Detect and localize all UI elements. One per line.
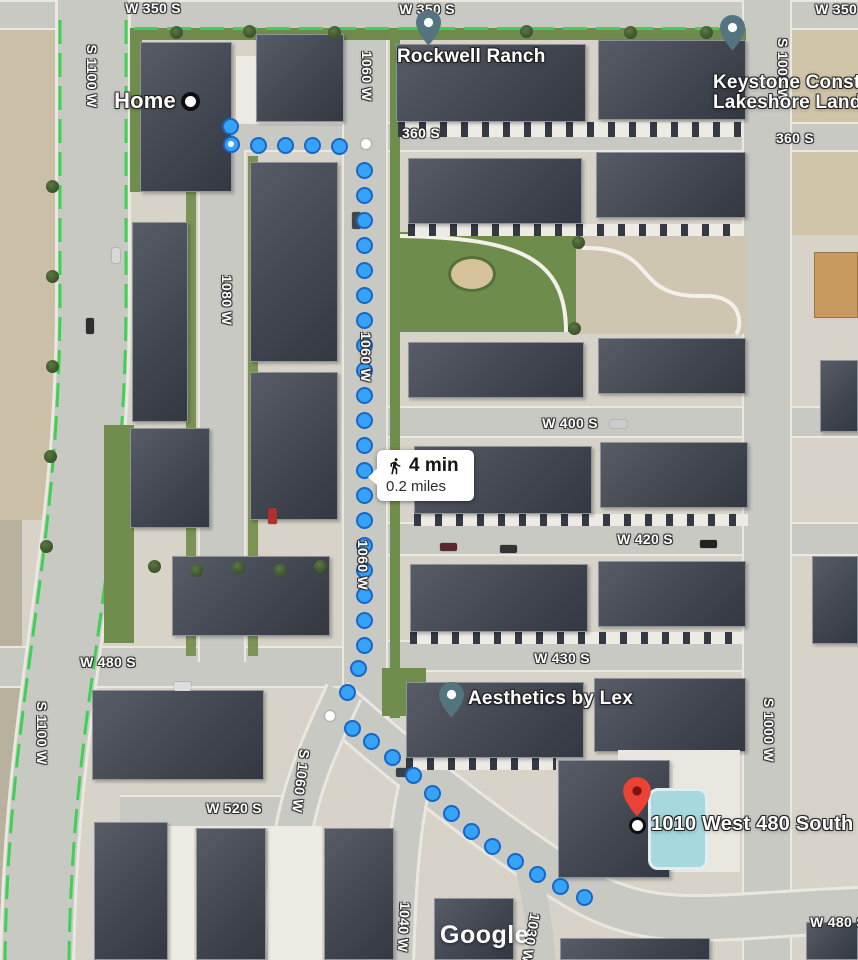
destination-label[interactable]: 1010 West 480 South bbox=[651, 813, 853, 836]
tree bbox=[44, 450, 57, 463]
parking-strip bbox=[168, 826, 194, 960]
satellite-map[interactable]: W 350 SW 350 SW 350 SS 1100 W1060 WS 100… bbox=[0, 0, 858, 960]
aesthetics-pin[interactable] bbox=[438, 681, 465, 719]
tree bbox=[700, 26, 713, 39]
building bbox=[130, 428, 210, 528]
tree bbox=[148, 560, 161, 573]
garage-drive bbox=[408, 224, 744, 236]
tree bbox=[46, 360, 59, 373]
building bbox=[820, 360, 858, 432]
car bbox=[112, 248, 120, 263]
garage-drive bbox=[414, 514, 748, 526]
park-path bbox=[582, 248, 739, 334]
tree bbox=[520, 25, 533, 38]
car bbox=[700, 540, 717, 548]
keystone-label-line2: Lakeshore Landing bbox=[713, 93, 858, 113]
tree bbox=[328, 26, 341, 39]
building bbox=[410, 564, 588, 632]
building bbox=[256, 34, 344, 122]
car bbox=[440, 543, 457, 551]
tree bbox=[170, 26, 183, 39]
building bbox=[560, 938, 710, 960]
garage-drive bbox=[398, 122, 742, 137]
car bbox=[174, 682, 191, 691]
garage-drive bbox=[406, 758, 556, 770]
building bbox=[132, 222, 188, 422]
building bbox=[812, 556, 858, 644]
keystone-label[interactable]: Keystone Construc Lakeshore Landing bbox=[713, 73, 858, 113]
garage-drive bbox=[410, 632, 744, 644]
rockwell-ranch-pin[interactable] bbox=[415, 9, 442, 47]
tree bbox=[572, 236, 585, 249]
home-label: Home bbox=[114, 88, 176, 114]
route-duration: 4 min bbox=[409, 455, 459, 477]
destination-pin[interactable] bbox=[622, 776, 652, 818]
building bbox=[94, 822, 168, 960]
tree bbox=[568, 322, 581, 335]
tree bbox=[190, 564, 203, 577]
home-marker[interactable] bbox=[181, 92, 200, 111]
keystone-pin[interactable] bbox=[719, 14, 746, 52]
parking-strip bbox=[268, 826, 322, 960]
google-logo[interactable]: Google bbox=[440, 921, 529, 950]
tree bbox=[40, 540, 53, 553]
building bbox=[250, 162, 338, 362]
building bbox=[408, 158, 582, 224]
route-distance: 0.2 miles bbox=[386, 478, 466, 495]
park-path bbox=[400, 236, 566, 332]
tree bbox=[46, 180, 59, 193]
building bbox=[324, 828, 394, 960]
tree bbox=[274, 564, 287, 577]
building bbox=[250, 372, 338, 520]
building bbox=[196, 828, 266, 960]
building bbox=[408, 342, 584, 398]
building bbox=[598, 561, 746, 627]
car bbox=[500, 545, 517, 553]
building bbox=[806, 922, 858, 960]
tree bbox=[314, 560, 327, 573]
car bbox=[352, 212, 361, 229]
building bbox=[92, 690, 264, 780]
destination-marker[interactable] bbox=[629, 817, 646, 834]
car bbox=[86, 318, 94, 334]
keystone-label-line1: Keystone Construc bbox=[713, 73, 858, 93]
tree bbox=[232, 561, 245, 574]
tree bbox=[243, 25, 256, 38]
road-s-1100-w bbox=[37, 0, 93, 960]
rockwell-ranch-label[interactable]: Rockwell Ranch bbox=[397, 46, 546, 68]
car bbox=[610, 420, 627, 428]
building bbox=[598, 338, 746, 394]
tree bbox=[624, 26, 637, 39]
route-info-tooltip[interactable]: 4 min 0.2 miles bbox=[377, 450, 474, 501]
building-home bbox=[140, 42, 232, 192]
aesthetics-label[interactable]: Aesthetics by Lex bbox=[468, 688, 633, 710]
car bbox=[268, 508, 277, 524]
car bbox=[396, 768, 414, 777]
walking-person-icon bbox=[386, 457, 404, 475]
tree bbox=[46, 270, 59, 283]
tooltip-arrow bbox=[368, 468, 378, 486]
building-under-construction bbox=[814, 252, 858, 318]
road-1040-w bbox=[398, 788, 414, 960]
building bbox=[600, 442, 748, 508]
building bbox=[596, 152, 746, 218]
